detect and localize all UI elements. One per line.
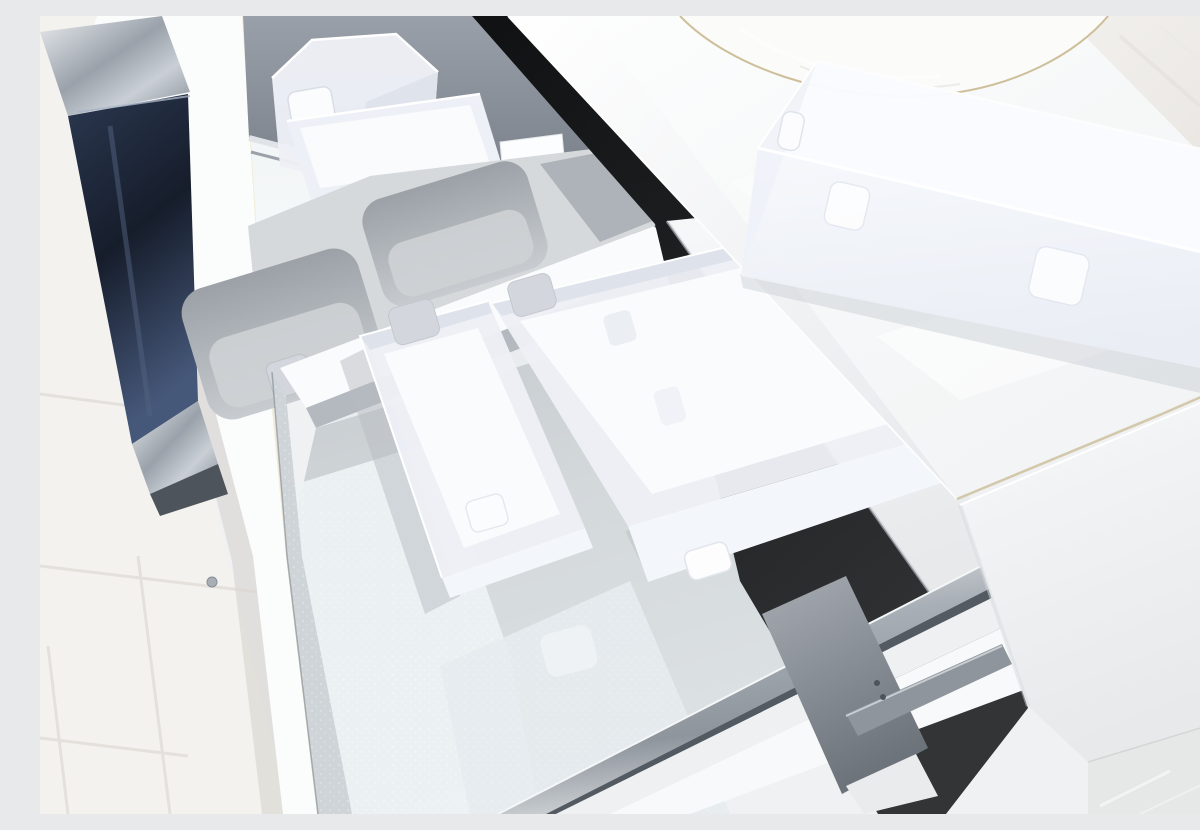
scene-canvas — [40, 16, 1200, 814]
counter-bin-dimple-2 — [1027, 245, 1091, 308]
panel-screw — [207, 577, 217, 587]
hardware-screw — [874, 680, 880, 686]
hardware-screw-2 — [880, 694, 886, 700]
photo-open-vanity-drawer — [40, 16, 1200, 814]
